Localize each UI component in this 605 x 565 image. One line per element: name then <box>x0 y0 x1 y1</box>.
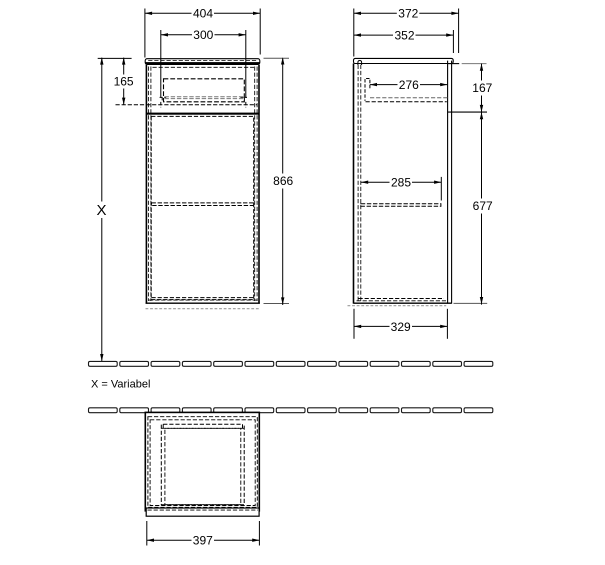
svg-text:X: X <box>96 202 106 219</box>
svg-text:285: 285 <box>391 176 411 190</box>
svg-text:404: 404 <box>193 7 213 21</box>
svg-text:352: 352 <box>394 29 414 43</box>
svg-text:167: 167 <box>472 81 492 95</box>
svg-text:276: 276 <box>399 78 419 92</box>
svg-text:866: 866 <box>273 174 293 188</box>
svg-text:329: 329 <box>391 320 411 334</box>
svg-text:165: 165 <box>114 75 134 89</box>
svg-text:300: 300 <box>193 28 213 42</box>
svg-text:X = Variabel: X = Variabel <box>91 379 150 391</box>
svg-text:372: 372 <box>398 7 418 21</box>
svg-text:677: 677 <box>473 199 493 213</box>
svg-text:397: 397 <box>193 534 213 548</box>
